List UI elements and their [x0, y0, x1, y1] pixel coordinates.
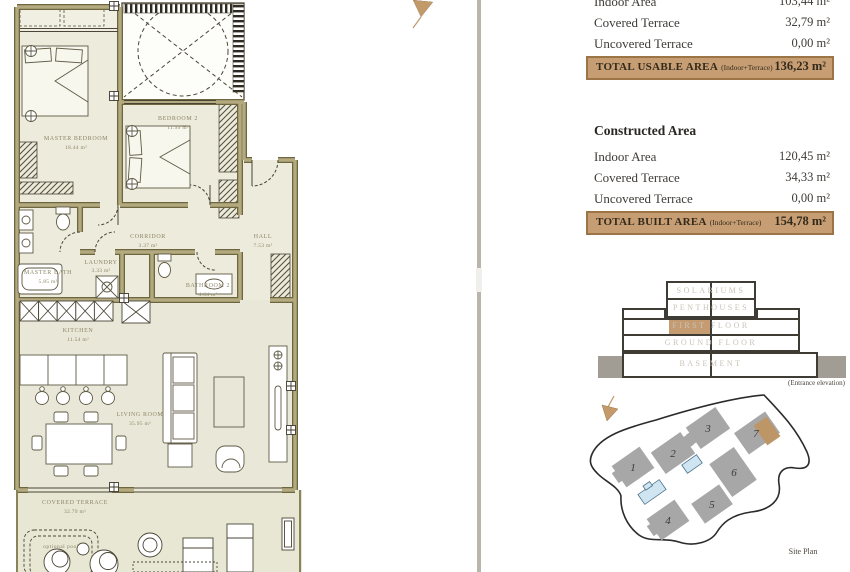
room-area-master-bedroom: 18.44 m²	[65, 145, 87, 151]
wall-counter	[269, 346, 287, 462]
total-built-value: 154,78 m²	[774, 214, 826, 229]
divider-notch	[476, 268, 482, 292]
room-label-covered-terrace: COVERED TERRACE	[42, 500, 108, 506]
room-area-hall: 7.53 m²	[253, 243, 272, 249]
room-area-kitchen: 11.54 m²	[67, 337, 89, 343]
area-row-label: Indoor Area	[594, 149, 656, 165]
elevation-floor-first: FIRST FLOOR	[622, 321, 800, 330]
building-number-5: 5	[709, 499, 715, 511]
area-row-value: 34,33 m²	[785, 170, 830, 185]
room-area-laundry: 3.33 m²	[91, 268, 110, 274]
elevation-diagram: SOLARIUMS PENTHOUSES FIRST FLOOR GROUND …	[590, 278, 848, 390]
entrance-elevation-caption: (Entrance elevation)	[735, 379, 845, 387]
area-row: Covered Terrace 34,33 m²	[586, 167, 834, 188]
room-label-master-bedroom: MASTER BEDROOM	[44, 136, 108, 142]
site-plan: 1 2 3 4 5 6 7 Site Plan	[578, 390, 850, 572]
elevation-floor-basement: BASEMENT	[622, 359, 800, 368]
plan-north-arrow-icon	[413, 0, 433, 28]
room-label-living-room: LIVING ROOM	[117, 412, 164, 418]
kitchen-cabinets	[20, 301, 150, 323]
elevation-floor-penthouses: PENTHOUSES	[622, 303, 800, 312]
area-row-label: Covered Terrace	[594, 170, 680, 186]
elevation-floor-solariums: SOLARIUMS	[622, 286, 800, 295]
room-area-living-room: 35.95 m²	[129, 421, 151, 427]
area-row-label: Uncovered Terrace	[594, 191, 693, 207]
area-row-value: 103,44 m²	[779, 0, 830, 9]
room-area-bathroom2: 4.64 m²	[198, 292, 217, 298]
building-number-2: 2	[670, 448, 676, 460]
total-usable-value: 136,23 m²	[774, 59, 826, 74]
room-area-master-bath: 5.85 m²	[38, 279, 57, 285]
building-number-3: 3	[704, 423, 711, 435]
room-label-bathroom2: BATHROOM 2	[186, 283, 230, 289]
optional-pool-label: optional pool	[43, 544, 79, 550]
area-row: Uncovered Terrace 0,00 m²	[586, 33, 834, 54]
room-area-bedroom2: 11.99 m²	[167, 125, 189, 131]
area-row-value: 120,45 m²	[779, 149, 830, 164]
room-area-corridor: 3.37 m²	[138, 243, 157, 249]
constructed-area-heading: Constructed Area	[586, 123, 834, 143]
building-number-1: 1	[630, 462, 636, 474]
area-row: Uncovered Terrace 0,00 m²	[586, 188, 834, 209]
area-row-value: 0,00 m²	[792, 36, 830, 51]
building-number-6: 6	[731, 467, 737, 479]
room-label-corridor: CORRIDOR	[130, 234, 166, 240]
building-number-4: 4	[665, 515, 671, 527]
total-built-note: (Indoor+Terrace)	[710, 218, 762, 227]
total-usable-note: (Indoor+Terrace)	[721, 63, 773, 72]
floor-plan: MASTER BEDROOM 18.44 m² BEDROOM 2 11.99 …	[0, 0, 480, 572]
constructed-area-table: Constructed Area Indoor Area 120,45 m² C…	[586, 123, 834, 235]
elevation-floor-ground: GROUND FLOOR	[622, 338, 800, 347]
area-row: Covered Terrace 32,79 m²	[586, 12, 834, 33]
master-bed-symbol	[22, 46, 88, 122]
usable-area-table: Indoor Area 103,44 m² Covered Terrace 32…	[586, 0, 834, 80]
area-row-label: Covered Terrace	[594, 15, 680, 31]
area-row-label: Uncovered Terrace	[594, 36, 693, 52]
area-row-value: 32,79 m²	[785, 15, 830, 30]
room-label-bedroom2: BEDROOM 2	[158, 116, 198, 122]
total-built-label: TOTAL BUILT AREA	[596, 216, 707, 228]
site-plan-caption: Site Plan	[789, 547, 818, 556]
floorplan-page: MASTER BEDROOM 18.44 m² BEDROOM 2 11.99 …	[0, 0, 850, 572]
room-label-master-bath: MASTER BATH	[24, 270, 72, 276]
area-row-value: 0,00 m²	[792, 191, 830, 206]
building-number-7: 7	[753, 428, 759, 440]
area-row: Indoor Area 103,44 m²	[586, 0, 834, 12]
area-row-label: Indoor Area	[594, 0, 656, 10]
room-label-hall: HALL	[254, 234, 272, 240]
bed2-symbol	[126, 126, 190, 190]
total-built-area-bar: TOTAL BUILT AREA (Indoor+Terrace) 154,78…	[586, 211, 834, 235]
laundry-fixtures	[96, 276, 118, 298]
room-label-kitchen: KITCHEN	[63, 328, 94, 334]
site-north-arrow-icon	[602, 396, 618, 421]
total-usable-area-bar: TOTAL USABLE AREA (Indoor+Terrace) 136,2…	[586, 56, 834, 80]
room-area-covered-terrace: 32.79 m²	[64, 509, 86, 515]
room-label-laundry: LAUNDRY	[84, 260, 117, 266]
total-usable-label: TOTAL USABLE AREA	[596, 61, 718, 73]
area-row: Indoor Area 120,45 m²	[586, 146, 834, 167]
